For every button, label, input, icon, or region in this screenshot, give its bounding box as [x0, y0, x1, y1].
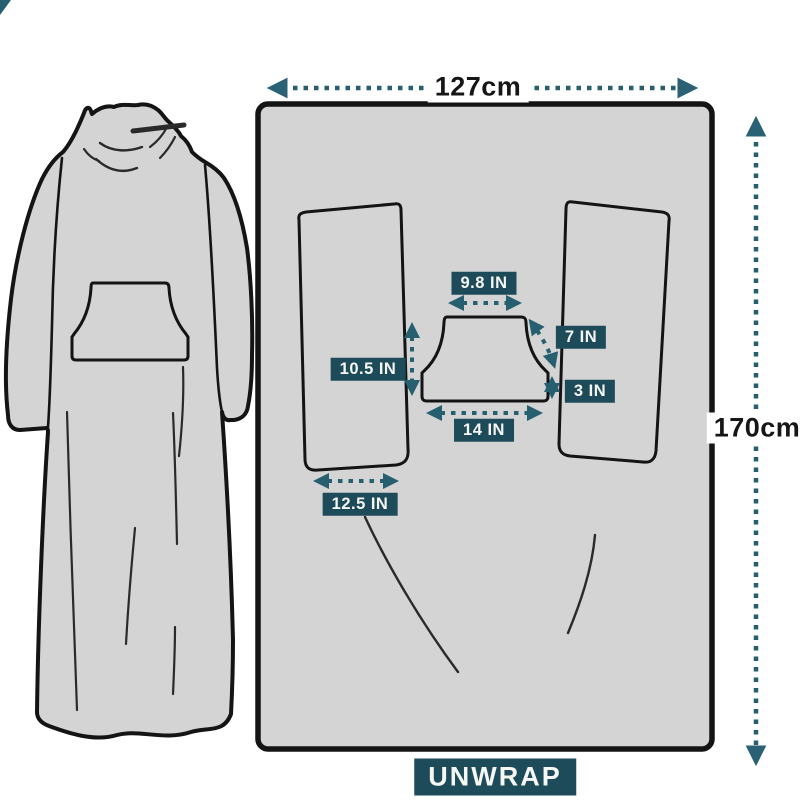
- left-sleeve-outline: [299, 204, 408, 470]
- pocket-bottom-width-label: 14 IN: [454, 419, 514, 442]
- corner-mark: [0, 0, 11, 15]
- unwrap-badge: UNWRAP: [414, 759, 576, 796]
- sleeve-opening-width-label: 12.5 IN: [323, 493, 398, 516]
- worn-blanket-outline: [6, 104, 252, 737]
- worn-pocket-outline: [72, 283, 188, 360]
- pocket-slant-height-label: 7 IN: [556, 326, 606, 349]
- diagram-artwork: [0, 0, 800, 800]
- overall-width-label: 127cm: [428, 72, 529, 103]
- product-dimension-diagram: 127cm 170cm 9.8 IN 10.5 IN 7 IN 3 IN 14 …: [0, 0, 800, 800]
- overall-height-label: 170cm: [707, 413, 800, 444]
- pocket-top-width-label: 9.8 IN: [451, 272, 516, 295]
- sleeve-opening-height-label: 10.5 IN: [331, 358, 406, 381]
- worn-blanket-figure: [6, 104, 252, 737]
- pocket-side-height-label: 3 IN: [565, 380, 615, 403]
